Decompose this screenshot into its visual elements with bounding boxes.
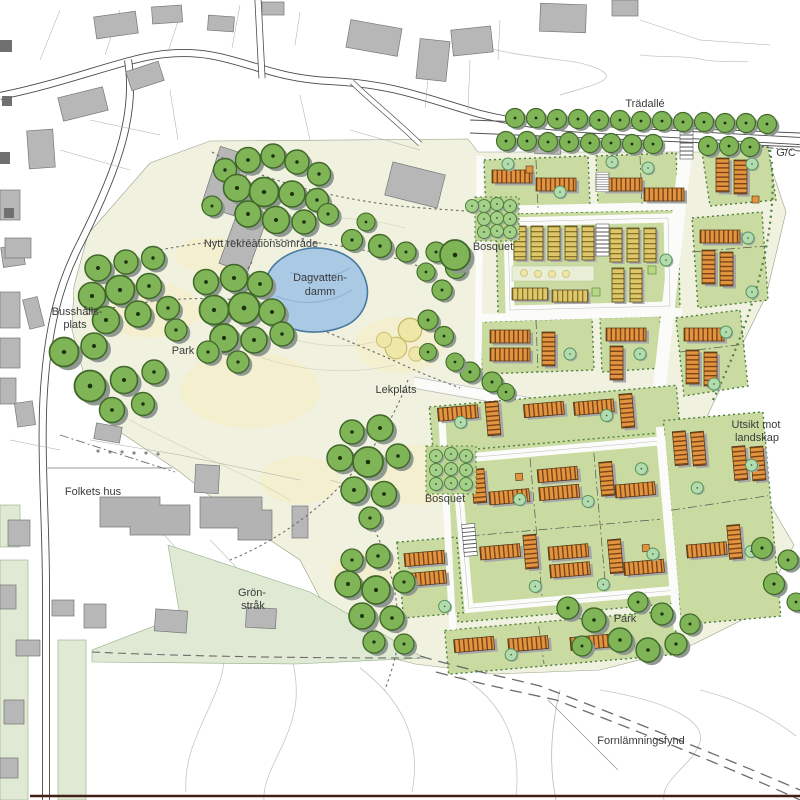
label-pond-line2: damm — [305, 286, 336, 298]
label-view-line2: landskap — [735, 432, 779, 444]
site-plan-svg: Trädallé G/C Nytt rekreationsområde Dagv… — [0, 0, 800, 800]
label-green-corridor-line1: Grön- — [238, 587, 266, 599]
label-bosquet-south: Bosquet — [425, 493, 465, 505]
avenue-trees-upper — [506, 109, 780, 136]
label-pond-line1: Dagvatten- — [293, 272, 347, 284]
bosquet-north — [475, 197, 519, 241]
label-recreation-area: Nytt rekreationsområde — [204, 238, 318, 250]
label-green-corridor-line2: stråk — [241, 600, 265, 612]
label-view-line1: Utsikt mot — [732, 419, 781, 431]
label-community-house: Folkets hus — [65, 486, 122, 498]
label-bike-path: G/C — [776, 147, 796, 159]
label-park-southeast: Park — [614, 613, 637, 625]
label-park-west: Park — [172, 345, 195, 357]
label-bosquet-north: Bosquet — [473, 241, 513, 253]
site-plan-map: Trädallé G/C Nytt rekreationsområde Dagv… — [0, 0, 800, 800]
label-playground: Lekplats — [376, 384, 417, 396]
label-ancient-remains: Fornlämningsfynd — [597, 735, 684, 747]
label-bus-stop-line1: Busshålls- — [52, 306, 103, 318]
label-bus-stop-line2: plats — [63, 319, 87, 331]
folkets-hus-building — [100, 497, 190, 535]
bosquet-south — [426, 446, 476, 494]
label-tree-avenue: Trädallé — [625, 98, 664, 110]
housing-south — [385, 378, 783, 678]
